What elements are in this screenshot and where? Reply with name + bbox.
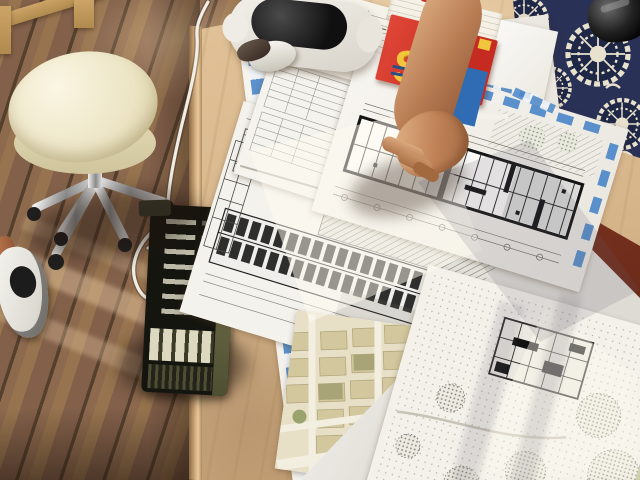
radio-grille <box>147 364 212 391</box>
radio-keys <box>149 328 215 363</box>
book-cover-yellow-mark <box>478 38 492 51</box>
scene-photo: S <box>0 0 640 480</box>
